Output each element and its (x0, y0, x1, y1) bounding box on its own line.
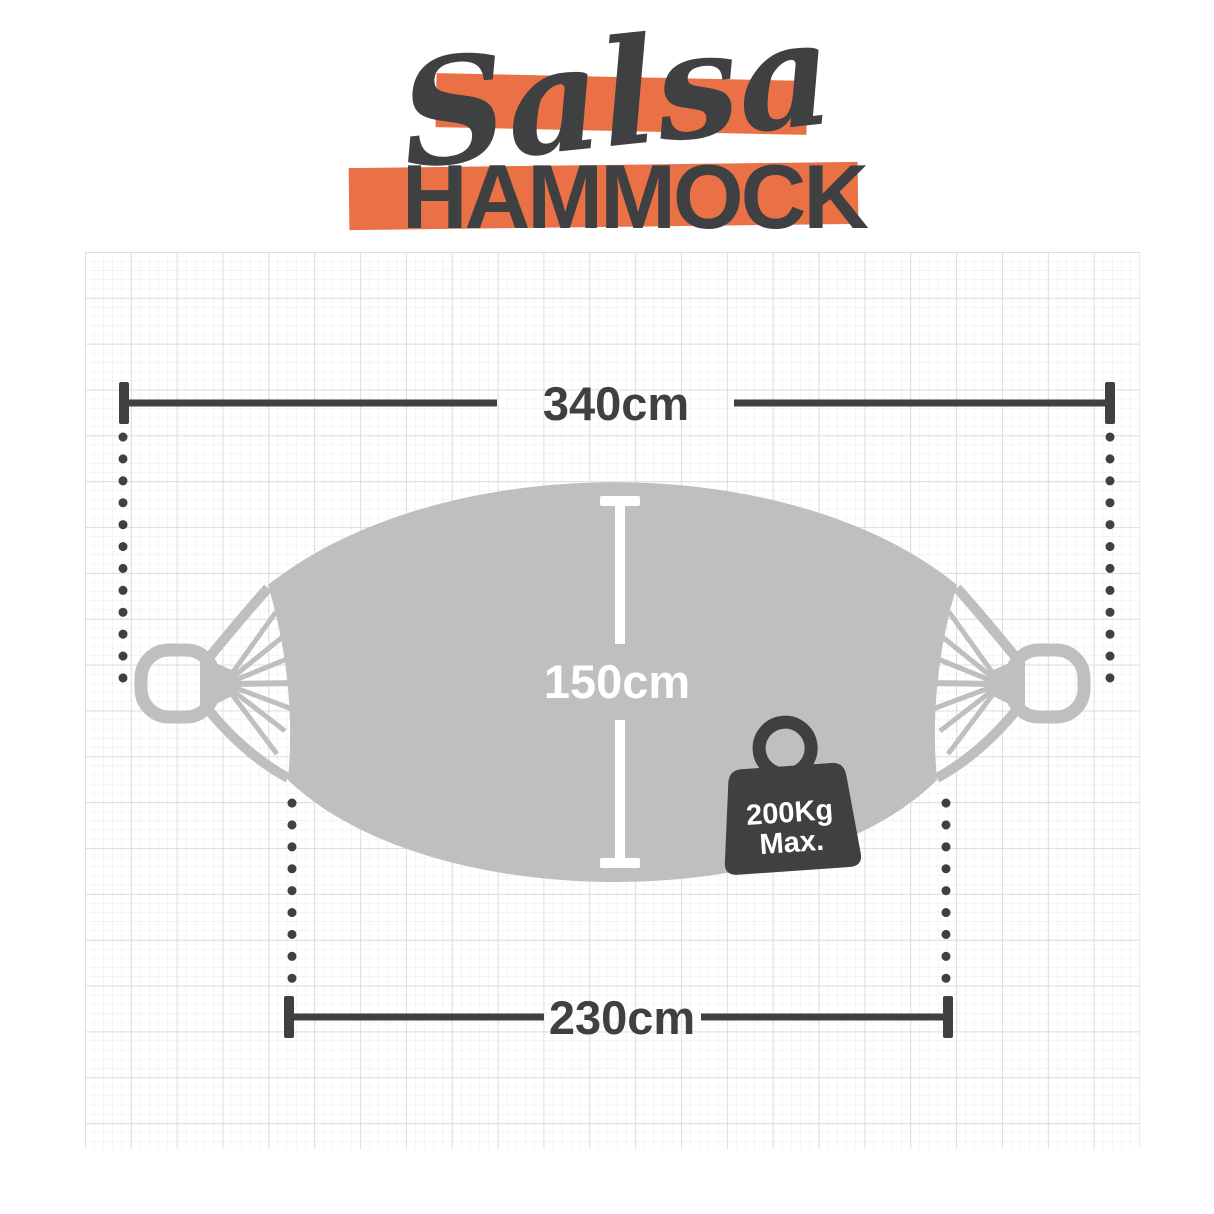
infographic-canvas: 340cm (0, 0, 1214, 1214)
dim-150-label: 150cm (544, 655, 690, 708)
dim-230-label: 230cm (549, 991, 695, 1044)
dim-340-label: 340cm (543, 377, 689, 430)
dim-150-line-top (615, 506, 625, 644)
dim-150-cap-bottom (600, 858, 640, 868)
dim-150-cap-top (600, 496, 640, 506)
hammock-infographic: 340cm (0, 0, 1214, 1214)
dim-150-line-bottom (615, 720, 625, 862)
weight-limit-unit: Max. (758, 825, 825, 861)
title-lockup: HAMMOCK Salsa (349, 0, 869, 248)
